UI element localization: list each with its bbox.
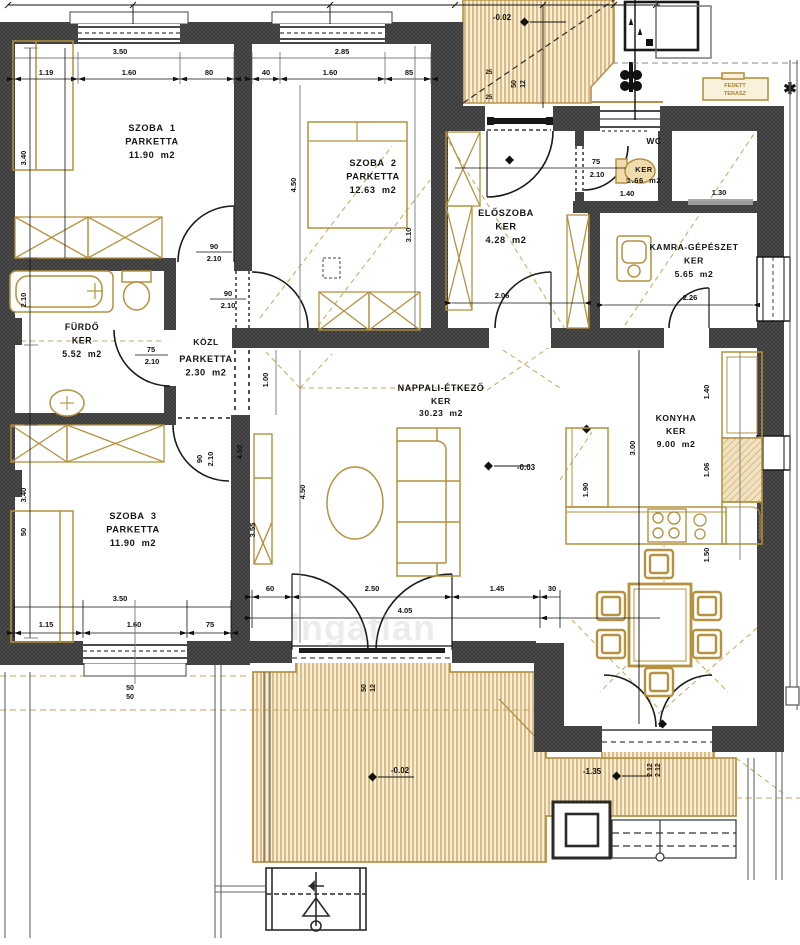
svg-text:60: 60 [266, 584, 274, 593]
svg-text:KER: KER [666, 426, 686, 436]
svg-text:1.40: 1.40 [702, 385, 711, 400]
svg-text:KER: KER [684, 256, 704, 266]
svg-text:50: 50 [361, 684, 368, 692]
svg-text:50: 50 [126, 685, 134, 692]
svg-text:1.30: 1.30 [712, 188, 727, 197]
svg-text:25: 25 [486, 70, 493, 76]
svg-text:11.90 m2: 11.90 m2 [129, 150, 175, 160]
svg-text:2.10: 2.10 [207, 254, 222, 263]
svg-text:4.50: 4.50 [298, 485, 307, 500]
svg-text:3.50: 3.50 [113, 594, 128, 603]
svg-text:2.12: 2.12 [647, 763, 654, 777]
svg-text:4.28 m2: 4.28 m2 [485, 235, 526, 245]
svg-text:KÖZL: KÖZL [193, 337, 219, 347]
svg-text:1.50: 1.50 [702, 548, 711, 563]
svg-text:KONYHA: KONYHA [656, 413, 697, 423]
svg-text:3.50: 3.50 [113, 47, 128, 56]
svg-text:4.50: 4.50 [289, 178, 298, 193]
svg-text:-0.02: -0.02 [493, 13, 512, 22]
svg-text:1.15: 1.15 [39, 620, 54, 629]
svg-text:2.30 m2: 2.30 m2 [185, 368, 226, 378]
svg-text:1.06: 1.06 [702, 463, 711, 478]
svg-text:2.12: 2.12 [655, 763, 662, 777]
svg-text:1.60: 1.60 [122, 68, 137, 77]
svg-text:2.10: 2.10 [590, 170, 605, 179]
svg-text:SZOBA 2: SZOBA 2 [349, 158, 396, 168]
svg-text:25: 25 [486, 95, 493, 101]
svg-text:3.55: 3.55 [248, 523, 257, 538]
svg-text:9.00 m2: 9.00 m2 [657, 439, 696, 449]
svg-text:1.00: 1.00 [261, 373, 270, 388]
svg-text:WC: WC [646, 136, 661, 146]
svg-text:FÜRDŐ: FÜRDŐ [65, 321, 99, 332]
svg-text:1.60: 1.60 [323, 68, 338, 77]
svg-text:1.90: 1.90 [581, 483, 590, 498]
svg-text:90: 90 [224, 289, 232, 298]
svg-text:PARKETTA: PARKETTA [125, 137, 178, 147]
svg-text:1.40: 1.40 [620, 189, 635, 198]
svg-text:FEDETT: FEDETT [724, 83, 746, 89]
svg-text:2.85: 2.85 [335, 47, 350, 56]
svg-text:50: 50 [511, 80, 518, 88]
svg-text:1.19: 1.19 [39, 68, 54, 77]
svg-text:PARKETTA: PARKETTA [346, 172, 399, 182]
svg-text:3.40: 3.40 [19, 151, 28, 166]
svg-text:PARKETTA: PARKETTA [179, 354, 232, 364]
svg-text:50: 50 [126, 694, 134, 701]
svg-text:3.00: 3.00 [628, 441, 637, 456]
svg-text:30: 30 [548, 584, 556, 593]
svg-text:75: 75 [206, 620, 214, 629]
svg-text:-1.35: -1.35 [583, 767, 602, 776]
svg-text:2.26: 2.26 [683, 293, 698, 302]
svg-text:SZOBA 1: SZOBA 1 [128, 123, 175, 133]
svg-text:12: 12 [520, 80, 527, 88]
svg-text:12: 12 [370, 684, 377, 692]
svg-text:KER: KER [72, 336, 92, 346]
svg-text:-0.02: -0.02 [391, 766, 410, 775]
svg-text:2.50: 2.50 [365, 584, 380, 593]
svg-text:3.10: 3.10 [404, 228, 413, 243]
svg-text:KER: KER [495, 222, 516, 232]
svg-text:30.23 m2: 30.23 m2 [419, 408, 463, 418]
svg-text:2.10: 2.10 [221, 301, 236, 310]
svg-text:90: 90 [195, 455, 204, 463]
svg-text:85: 85 [405, 68, 413, 77]
svg-text:ingatlan: ingatlan [290, 607, 436, 648]
svg-text:KAMRA-GÉPÉSZET: KAMRA-GÉPÉSZET [649, 242, 738, 252]
svg-text:5.65 m2: 5.65 m2 [675, 269, 714, 279]
svg-text:4.50: 4.50 [235, 445, 244, 460]
svg-text:SZOBA 3: SZOBA 3 [109, 511, 156, 521]
svg-text:NAPPALI-ÉTKEZŐ: NAPPALI-ÉTKEZŐ [398, 382, 485, 393]
svg-text:75: 75 [592, 157, 600, 166]
svg-text:12.63 m2: 12.63 m2 [350, 185, 397, 195]
svg-text:90: 90 [210, 242, 218, 251]
svg-text:2.10: 2.10 [19, 293, 28, 308]
svg-text:2.10: 2.10 [206, 452, 215, 467]
svg-text:1.60: 1.60 [127, 620, 142, 629]
svg-text:11.90 m2: 11.90 m2 [110, 538, 156, 548]
svg-text:PARKETTA: PARKETTA [106, 525, 159, 535]
svg-text:75: 75 [147, 345, 155, 354]
svg-text:1.66 m2: 1.66 m2 [627, 176, 661, 185]
svg-text:2.06: 2.06 [495, 291, 510, 300]
svg-text:1.45: 1.45 [490, 584, 505, 593]
svg-text:2.10: 2.10 [145, 357, 160, 366]
svg-text:TERASZ: TERASZ [724, 91, 747, 97]
svg-text:ELŐSZOBA: ELŐSZOBA [478, 207, 534, 218]
svg-text:KER: KER [431, 396, 451, 406]
svg-text:50: 50 [19, 528, 28, 536]
svg-text:80: 80 [205, 68, 213, 77]
svg-text:3.40: 3.40 [19, 488, 28, 503]
svg-text:5.52 m2: 5.52 m2 [62, 349, 102, 359]
svg-text:-0.03: -0.03 [517, 463, 536, 472]
svg-text:KER: KER [635, 165, 653, 174]
svg-text:40: 40 [262, 68, 270, 77]
